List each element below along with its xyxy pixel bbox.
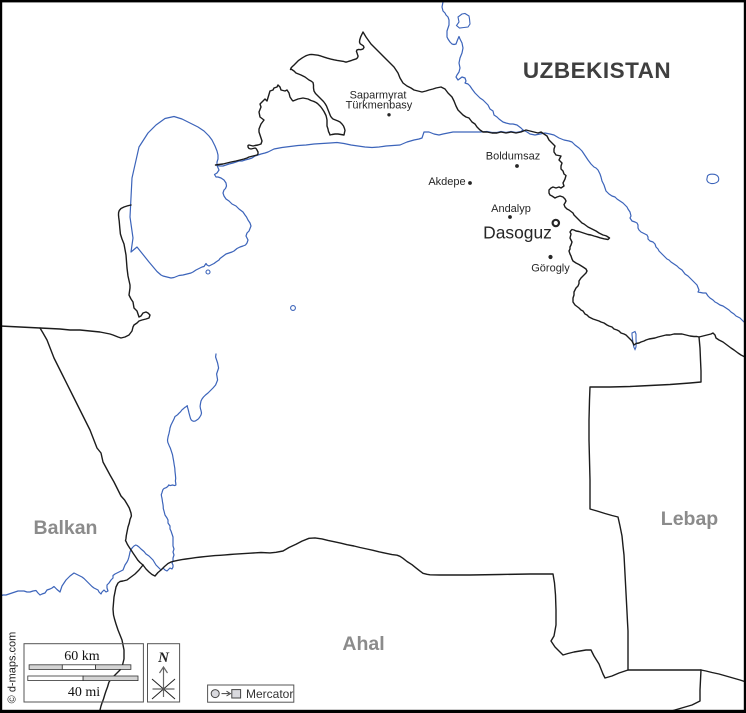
svg-text:UZBEKISTAN: UZBEKISTAN (523, 58, 671, 83)
svg-text:Akdepe: Akdepe (428, 176, 465, 188)
svg-text:Andalyp: Andalyp (491, 203, 531, 215)
svg-text:Boldumsaz: Boldumsaz (486, 151, 540, 163)
svg-text:Dasoguz: Dasoguz (483, 223, 552, 243)
svg-text:60 km: 60 km (64, 649, 100, 664)
svg-text:N: N (157, 650, 170, 666)
svg-text:Balkan: Balkan (34, 517, 98, 539)
svg-text:Ahal: Ahal (342, 633, 384, 655)
svg-text:40 mi: 40 mi (68, 685, 100, 700)
svg-text:Lebap: Lebap (661, 508, 719, 530)
svg-text:Mercator: Mercator (246, 687, 293, 701)
svg-text:Türkmenbasy: Türkmenbasy (346, 100, 413, 112)
svg-text:© d-maps.com: © d-maps.com (7, 632, 19, 704)
svg-text:Görogly: Görogly (531, 263, 570, 275)
